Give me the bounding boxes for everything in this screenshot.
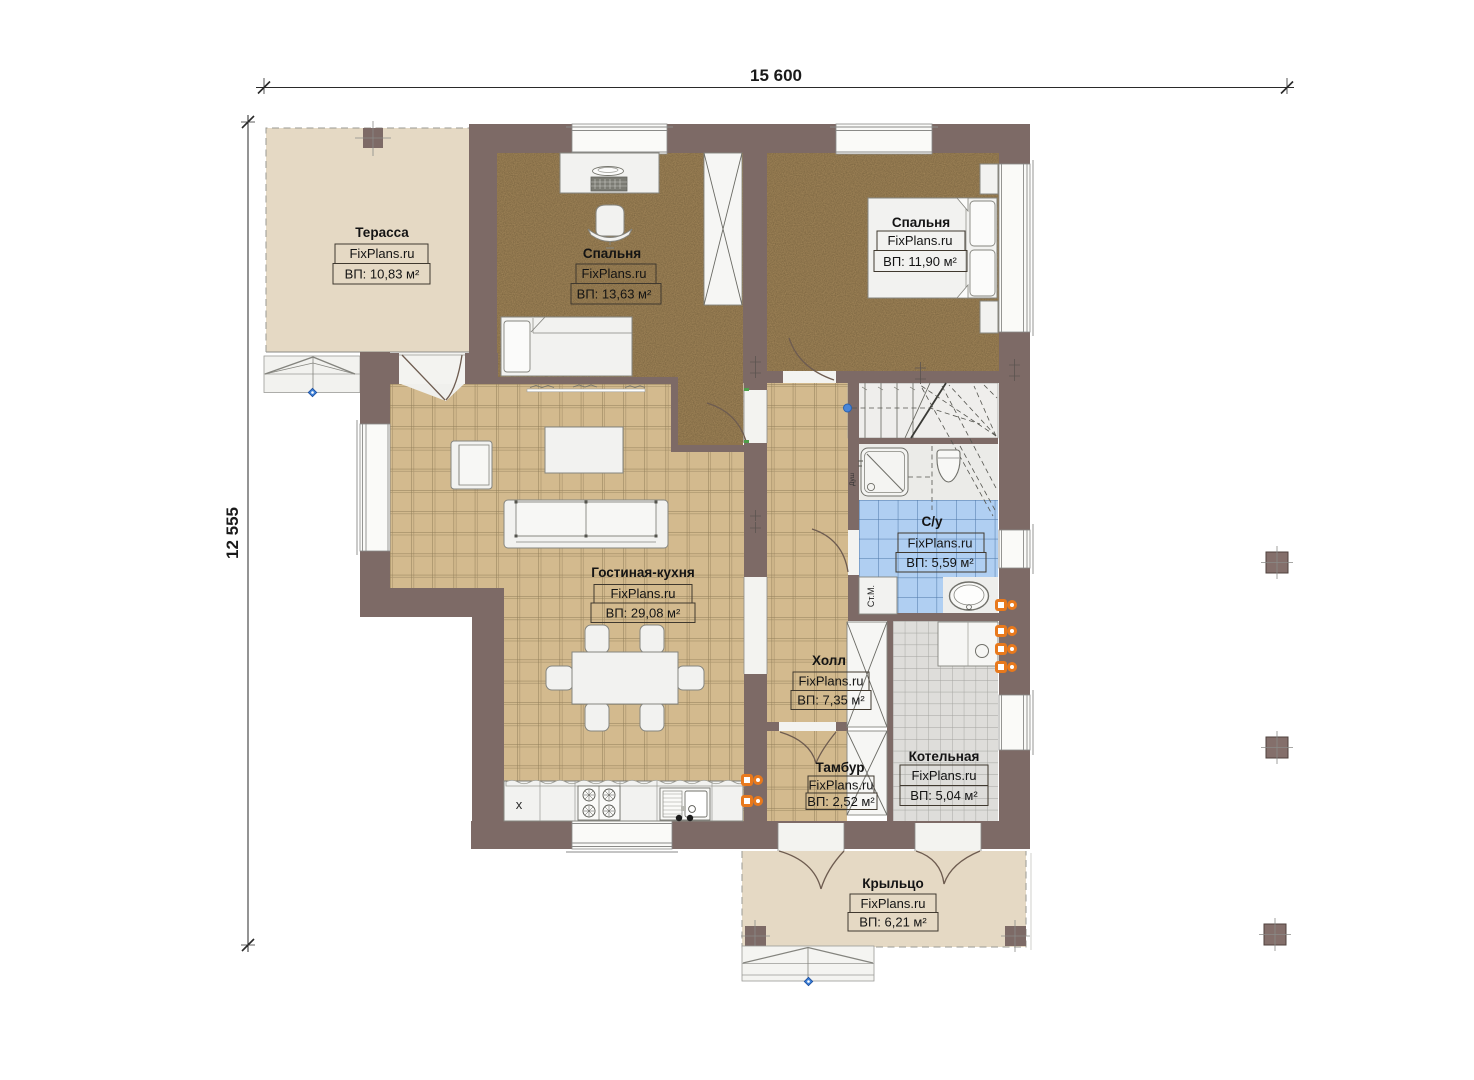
svg-text:15 600: 15 600 [750,66,802,85]
svg-text:FixPlans.ru: FixPlans.ru [907,536,972,551]
svg-text:ВП: 5,59 м²: ВП: 5,59 м² [906,555,974,570]
svg-text:Душ: Душ [849,473,856,486]
svg-text:ВП: 7,35 м²: ВП: 7,35 м² [797,693,865,708]
svg-text:Тамбур: Тамбур [816,760,865,775]
svg-text:x: x [516,797,523,812]
svg-text:Гостиная-кухня: Гостиная-кухня [591,565,694,580]
svg-text:Ст.М.: Ст.М. [866,585,876,607]
svg-text:12 555: 12 555 [223,507,242,559]
svg-text:FixPlans.ru: FixPlans.ru [808,778,873,793]
svg-text:ВП: 13,63 м²: ВП: 13,63 м² [577,287,652,302]
svg-text:ВП: 10,83 м²: ВП: 10,83 м² [345,267,420,282]
svg-text:FixPlans.ru: FixPlans.ru [581,266,646,281]
svg-text:ВП: 2,52 м²: ВП: 2,52 м² [807,794,875,809]
svg-text:FixPlans.ru: FixPlans.ru [610,586,675,601]
svg-text:С/у: С/у [921,514,943,529]
svg-text:FixPlans.ru: FixPlans.ru [349,246,414,261]
svg-text:Крыльцо: Крыльцо [862,876,923,891]
svg-text:Терасса: Терасса [355,225,409,240]
svg-text:FixPlans.ru: FixPlans.ru [798,674,863,689]
svg-text:Спальня: Спальня [892,215,950,230]
svg-text:FixPlans.ru: FixPlans.ru [860,896,925,911]
svg-text:ВП: 11,90 м²: ВП: 11,90 м² [883,254,957,269]
svg-text:ВП: 6,21 м²: ВП: 6,21 м² [859,915,927,930]
svg-text:FixPlans.ru: FixPlans.ru [911,768,976,783]
svg-text:FixPlans.ru: FixPlans.ru [887,233,952,248]
svg-text:Спальня: Спальня [583,246,641,261]
svg-text:Котельная: Котельная [909,749,980,764]
svg-text:Холл: Холл [812,653,846,668]
svg-text:ВП: 5,04 м²: ВП: 5,04 м² [910,788,978,803]
svg-text:ВП: 29,08 м²: ВП: 29,08 м² [606,606,681,621]
